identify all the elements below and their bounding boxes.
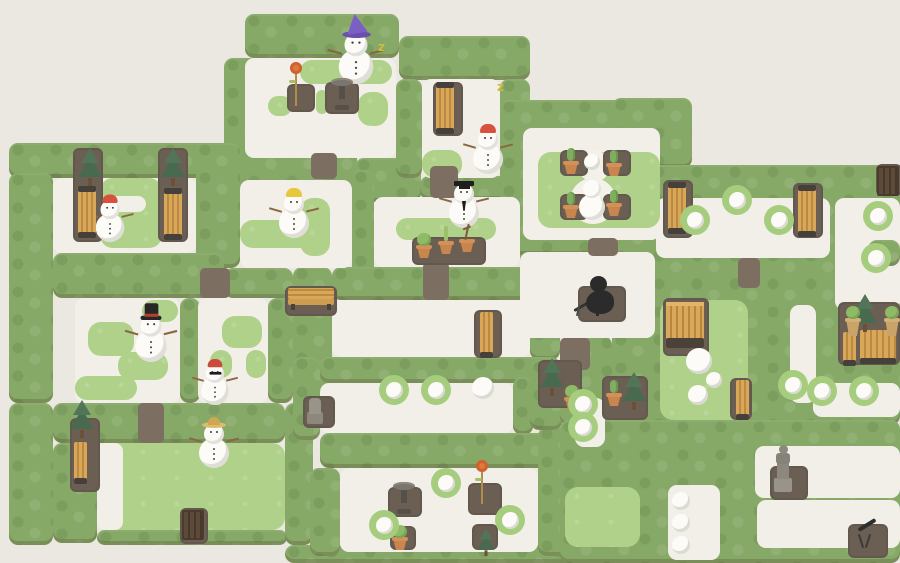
birdbath xyxy=(330,78,354,110)
twig-part xyxy=(464,224,469,240)
sblob-part xyxy=(309,398,321,414)
potted-plant xyxy=(416,230,432,258)
cap-part xyxy=(436,82,454,88)
sbust-part xyxy=(776,453,790,464)
hedge-block xyxy=(320,433,563,468)
hat-grad-board-part xyxy=(454,181,474,186)
head-part xyxy=(476,460,488,472)
bench-vertical[interactable] xyxy=(164,190,182,238)
rbball-part xyxy=(856,383,873,400)
trunk-part xyxy=(550,388,554,396)
sleep-z-particle: z xyxy=(497,80,504,94)
dirt-path xyxy=(423,262,449,300)
wooden-fence xyxy=(74,442,87,482)
snowball[interactable] xyxy=(688,385,708,405)
btns-part xyxy=(150,346,152,348)
snowman-yellow-hat[interactable] xyxy=(276,186,312,238)
dirt-path xyxy=(138,403,164,443)
potted-plant xyxy=(606,378,622,406)
hat-beanie-part xyxy=(208,359,223,367)
face-part xyxy=(105,207,115,210)
t1-part xyxy=(480,529,493,540)
rim-part xyxy=(606,203,622,207)
grass-patch xyxy=(222,316,262,348)
lg-part xyxy=(291,304,295,310)
hat-top-band-part xyxy=(145,314,159,317)
hat-red-part xyxy=(102,195,117,204)
wooden-gate[interactable] xyxy=(182,510,204,540)
rim-part xyxy=(563,205,579,209)
topiary-pot xyxy=(845,302,861,336)
hat-yellow-part xyxy=(286,188,302,197)
sprout-part xyxy=(444,226,448,241)
grass-patch xyxy=(88,322,134,356)
trunk-part xyxy=(632,402,636,410)
t1-part xyxy=(73,400,91,415)
snowman-top-hat[interactable] xyxy=(132,307,170,362)
game-scene-garden-maze: zz xyxy=(0,0,900,563)
snowman-beanie-hat[interactable] xyxy=(198,357,231,405)
snowball-melt-ring[interactable] xyxy=(568,412,598,442)
cap-part xyxy=(74,478,87,484)
t1-part xyxy=(543,358,561,373)
potted-plant xyxy=(606,148,622,176)
trunk-part xyxy=(88,178,92,186)
dirt-path xyxy=(311,153,337,179)
rbball-part xyxy=(386,382,403,399)
rbball-part xyxy=(575,396,592,413)
pot-part xyxy=(845,320,861,336)
rbball-part xyxy=(771,212,788,229)
snowball[interactable] xyxy=(686,348,712,374)
snowman-wizard-hat[interactable] xyxy=(335,24,376,84)
back-part xyxy=(288,288,334,299)
snowball[interactable] xyxy=(672,536,690,554)
hedge-block xyxy=(9,173,53,403)
rim-part xyxy=(438,241,454,245)
bench-horizontal[interactable] xyxy=(288,288,334,310)
cact-part xyxy=(567,192,575,205)
cact-part xyxy=(610,150,618,163)
bench-vertical[interactable] xyxy=(798,187,816,235)
snowball-melt-ring[interactable] xyxy=(369,510,399,540)
garden-statue xyxy=(306,394,324,424)
btns-part xyxy=(214,391,216,393)
topiary-pot xyxy=(884,302,900,336)
pine-tree xyxy=(622,372,646,410)
pine-tree xyxy=(78,148,102,186)
bowl-part xyxy=(393,482,415,490)
face-part xyxy=(350,41,362,44)
scol-part xyxy=(777,463,789,479)
bowl-part xyxy=(331,78,353,86)
sleep-z-particle: z xyxy=(378,40,385,54)
rbball-part xyxy=(870,208,887,225)
bstem-part xyxy=(401,489,407,503)
rim-part xyxy=(563,161,579,165)
leaf-part xyxy=(289,80,296,83)
rbball-part xyxy=(868,250,885,267)
wooden-fence xyxy=(480,312,493,356)
btns-part xyxy=(355,67,357,69)
telescope xyxy=(850,520,880,548)
hedge-block xyxy=(396,79,422,178)
trunk-part xyxy=(171,178,175,186)
lg-part xyxy=(327,304,331,310)
h-part xyxy=(478,130,498,150)
grass-patch xyxy=(246,350,266,378)
leaf-part xyxy=(475,478,482,481)
garden-statue xyxy=(772,442,794,492)
grass-patch xyxy=(358,92,388,126)
rbball-part xyxy=(814,383,831,400)
btns-part xyxy=(487,159,489,161)
ml-part xyxy=(596,312,599,316)
bstem-part xyxy=(339,85,345,99)
btns-part xyxy=(109,228,111,230)
shades-part xyxy=(209,372,221,375)
face-part xyxy=(459,191,469,194)
hat-straw-dome-part xyxy=(208,417,220,425)
hat-wizard-cone-part xyxy=(344,12,368,35)
bench-vertical[interactable] xyxy=(436,84,454,132)
btns-part xyxy=(293,223,295,225)
hedge-block xyxy=(310,468,340,556)
stem-part xyxy=(295,74,297,106)
pine-tree xyxy=(70,400,94,438)
snowball[interactable] xyxy=(672,514,690,532)
rbball-part xyxy=(376,517,393,534)
cap-part xyxy=(843,360,856,366)
seatband-part xyxy=(666,338,704,348)
rbball-part xyxy=(785,377,802,394)
trunk-part xyxy=(485,550,488,556)
btns-part xyxy=(213,453,215,455)
cap-part xyxy=(736,414,749,420)
monster-player[interactable] xyxy=(578,276,618,316)
grass-patch xyxy=(565,487,640,547)
snowball-melt-ring[interactable] xyxy=(849,376,879,406)
trunk-part xyxy=(863,324,867,332)
face-part xyxy=(209,431,219,434)
rim-part xyxy=(606,393,622,397)
rim-part xyxy=(606,163,622,167)
snowman-straw-hat[interactable] xyxy=(196,416,232,468)
potted-plant xyxy=(563,190,579,218)
sped-part xyxy=(774,478,792,492)
birdbath xyxy=(392,482,416,514)
cact-part xyxy=(610,190,618,203)
ttube-part xyxy=(857,518,876,532)
snowball-melt-ring[interactable] xyxy=(807,376,837,406)
snowball[interactable] xyxy=(584,154,600,170)
rbball-part xyxy=(729,192,746,209)
cap-part xyxy=(436,128,454,134)
t1-part xyxy=(164,148,182,163)
grass-patch xyxy=(75,376,137,400)
face-part xyxy=(146,323,157,326)
tleg2-part xyxy=(865,534,871,548)
cap-part xyxy=(668,182,686,188)
cap-part xyxy=(78,232,96,238)
hedge-block xyxy=(53,253,224,298)
hedge-block xyxy=(196,143,240,268)
cact-part xyxy=(610,380,618,393)
wooden-fence xyxy=(843,332,856,364)
cap-part xyxy=(480,352,493,358)
face-part xyxy=(483,137,493,140)
snowball[interactable] xyxy=(472,377,494,399)
cap-part xyxy=(164,234,182,240)
plantball-part xyxy=(846,306,860,319)
cap-part xyxy=(798,185,816,191)
potted-plant xyxy=(563,146,579,174)
dirt-path xyxy=(738,258,760,288)
stacked-snowballs[interactable] xyxy=(577,176,607,220)
snowman-grad-hat[interactable] xyxy=(446,176,482,228)
rbball-part xyxy=(687,212,704,229)
flower-stake xyxy=(474,460,490,504)
bbase-part xyxy=(397,509,411,514)
trunk-part xyxy=(80,430,84,438)
topedge-part xyxy=(666,302,704,306)
snowball-melt-ring[interactable] xyxy=(680,205,710,235)
t1-part xyxy=(81,148,99,163)
h-part xyxy=(284,194,304,214)
potted-plant xyxy=(606,188,622,216)
t1-part xyxy=(625,372,643,387)
rim-part xyxy=(459,239,475,243)
pot-part xyxy=(884,320,900,336)
snowball-melt-ring[interactable] xyxy=(722,185,752,215)
tleg1-part xyxy=(858,534,864,548)
pine-tree xyxy=(477,529,494,556)
h2-part xyxy=(583,180,601,198)
mtripod-part xyxy=(576,306,580,316)
cap-part xyxy=(860,358,896,364)
bench-front[interactable] xyxy=(666,302,704,348)
potted-plant xyxy=(438,226,454,254)
dirt-path xyxy=(588,238,618,256)
face-part xyxy=(289,201,299,204)
rbball-part xyxy=(428,382,445,399)
pine-tree xyxy=(161,148,185,186)
head-part xyxy=(290,62,302,74)
snowball-melt-ring[interactable] xyxy=(421,375,451,405)
rbball-part xyxy=(502,512,519,529)
potted-plant xyxy=(459,224,475,252)
snowball-melt-ring[interactable] xyxy=(431,468,461,498)
plantball-part xyxy=(885,306,899,319)
cact-part xyxy=(567,148,575,161)
rbball-part xyxy=(575,419,592,436)
snowball-melt-ring[interactable] xyxy=(764,205,794,235)
shead-part xyxy=(779,445,788,454)
snowball-melt-ring[interactable] xyxy=(861,243,891,273)
cap-part xyxy=(164,188,182,194)
snowball-melt-ring[interactable] xyxy=(495,505,525,535)
wooden-gate[interactable] xyxy=(877,166,899,196)
mh-part xyxy=(590,276,607,292)
snowman-red-hat[interactable] xyxy=(93,193,127,242)
cap-part xyxy=(798,231,816,237)
snow-path xyxy=(97,443,123,530)
plantball-part xyxy=(417,233,431,246)
snowball[interactable] xyxy=(706,372,722,388)
stem-part xyxy=(481,472,483,504)
mb-part xyxy=(586,290,614,314)
hedge-block xyxy=(399,36,530,80)
rbball-part xyxy=(438,475,455,492)
hedge-block xyxy=(9,403,53,545)
hedge-block xyxy=(180,298,200,403)
cap-part xyxy=(78,186,96,192)
snowman-red-hat[interactable] xyxy=(470,122,506,174)
snowball-melt-ring[interactable] xyxy=(778,370,808,400)
snowball[interactable] xyxy=(672,492,690,510)
flower-stake xyxy=(288,62,304,106)
bbase-part xyxy=(335,105,349,110)
snowball-melt-ring[interactable] xyxy=(863,201,893,231)
hat-red-part xyxy=(480,124,496,133)
hedge-block xyxy=(224,268,293,298)
wooden-fence xyxy=(736,380,749,418)
bench-vertical[interactable] xyxy=(78,188,96,236)
dirt-path xyxy=(200,268,230,298)
snowball-melt-ring[interactable] xyxy=(379,375,409,405)
btns-part xyxy=(463,213,465,215)
pine-tree xyxy=(540,358,564,396)
